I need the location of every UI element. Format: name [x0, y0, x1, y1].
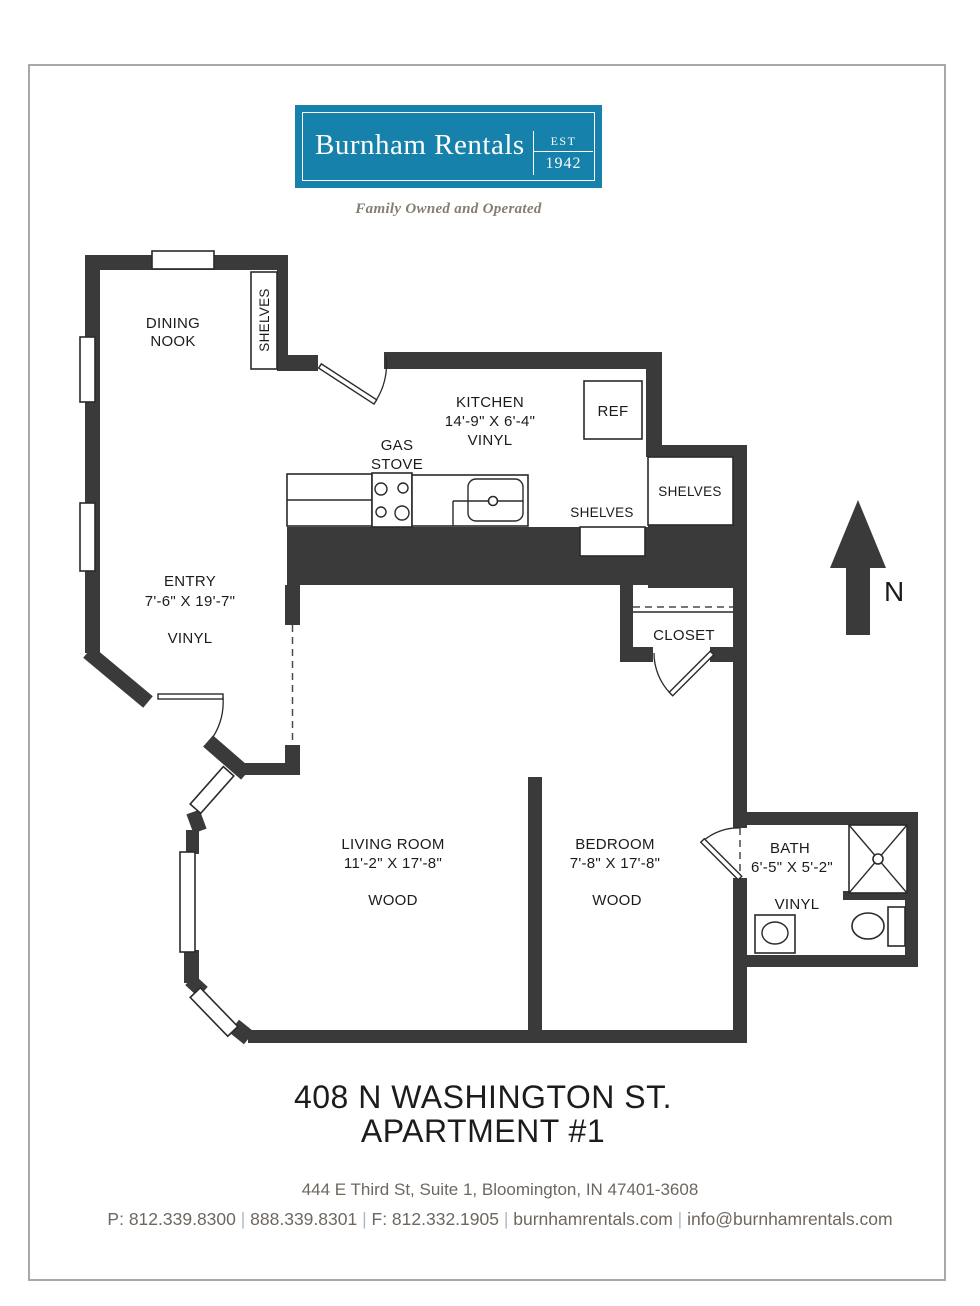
window-dining-top [152, 251, 214, 269]
entry-dims: 7'-6" X 19'-7" [145, 593, 236, 610]
toilet-tank [888, 907, 905, 946]
kitchen-shelves-label: SHELVES [570, 505, 633, 520]
living-room-floor: WOOD [368, 892, 418, 909]
kitchen-faucet [489, 497, 498, 506]
footer-contacts: P: 812.339.8300 | 888.339.8301 | F: 812.… [20, 1209, 980, 1230]
shower-drain [873, 854, 883, 864]
shelf-niche [580, 527, 645, 556]
footer-contact: P: 812.339.8300 [107, 1209, 235, 1229]
footer-contact: 888.339.8301 [250, 1209, 357, 1229]
entry-door-arc [213, 697, 223, 737]
kitchen-dims: 14'-9" X 6'-4" [445, 413, 536, 430]
closet-door-arc [654, 653, 671, 694]
entry-door-leaf [158, 694, 223, 699]
kitchen-label: KITCHEN [456, 394, 524, 411]
footer-address: 444 E Third St, Suite 1, Bloomington, IN… [20, 1180, 980, 1200]
bath-floor: VINYL [775, 896, 820, 913]
right-shelves-label: SHELVES [658, 484, 721, 499]
window-bay-diagonal-lower [190, 988, 238, 1037]
footer-separator: | [236, 1209, 250, 1229]
closet-door-leaf [669, 651, 714, 696]
entry-floor: VINYL [168, 630, 213, 647]
bedroom-floor: WOOD [592, 892, 642, 909]
dining-shelves-label: SHELVES [257, 288, 272, 351]
bath-sink [755, 915, 795, 953]
bedroom-dims: 7'-8" X 17'-8" [570, 855, 661, 872]
ref-label: REF [598, 403, 629, 420]
north-arrow-head [830, 500, 886, 568]
footer-separator: | [673, 1209, 687, 1229]
footer: 444 E Third St, Suite 1, Bloomington, IN… [20, 1180, 980, 1230]
bath-label: BATH [770, 840, 810, 857]
bedroom-label: BEDROOM [575, 836, 655, 853]
footer-contact: burnhamrentals.com [513, 1209, 673, 1229]
window-dining-left-upper [80, 337, 95, 402]
north-arrow: N [830, 500, 905, 635]
living-room-label: LIVING ROOM [341, 836, 444, 853]
footer-separator: | [357, 1209, 371, 1229]
windows [80, 251, 238, 1036]
north-label: N [884, 576, 905, 607]
north-arrow-shaft [846, 568, 870, 635]
gas-stove-label-2: STOVE [371, 456, 423, 473]
entry-label: ENTRY [164, 573, 216, 590]
room-labels: DINING NOOK SHELVES KITCHEN 14'-9" X 6'-… [145, 288, 833, 913]
dining-nook-label-1: DINING [146, 315, 200, 332]
property-title-line1: 408 N WASHINGTON ST. [0, 1080, 966, 1114]
bath-door-leaf [701, 839, 742, 880]
kitchen-floor: VINYL [468, 432, 513, 449]
living-room-dims: 11'-2" X 17'-8" [344, 855, 442, 872]
footer-contact: F: 812.332.1905 [372, 1209, 499, 1229]
bath-door-arc [703, 828, 740, 841]
toilet-bowl [852, 913, 884, 939]
footer-contact: info@burnhamrentals.com [687, 1209, 893, 1229]
kitchen-door-leaf [319, 364, 377, 404]
window-bay-diagonal-upper [190, 767, 234, 814]
dining-nook-label-2: NOOK [150, 333, 195, 350]
walls-diagonal [88, 652, 249, 1038]
window-bay-vertical [180, 852, 195, 952]
bath-dims: 6'-5" X 5'-2" [751, 859, 833, 876]
gas-stove-label-1: GAS [381, 437, 414, 454]
closet-label: CLOSET [653, 627, 715, 644]
property-title-line2: APARTMENT #1 [0, 1114, 966, 1148]
window-dining-left-lower [80, 503, 95, 571]
property-title: 408 N WASHINGTON ST. APARTMENT #1 [0, 1080, 966, 1148]
footer-separator: | [499, 1209, 513, 1229]
